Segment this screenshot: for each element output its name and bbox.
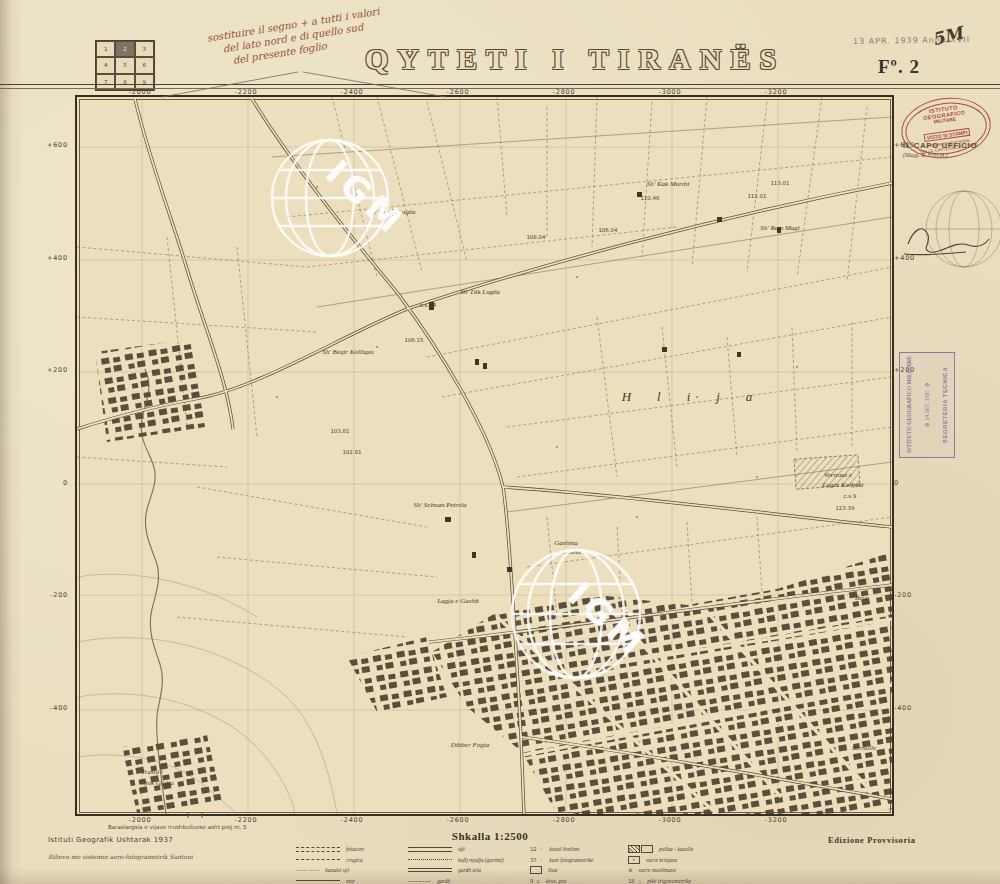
spot-height-label: 112.01 — [747, 193, 766, 199]
index-grid-cell: 1 — [96, 41, 115, 57]
legend-symbol-well: 9 ▫ — [530, 878, 540, 884]
spot-height-label: 108.04 — [526, 234, 545, 240]
legend-symbol-dsolid2 — [408, 868, 452, 872]
legend-symbol-rect: ·· — [530, 866, 542, 874]
legend-row: 12 ·kuotë livelimi — [530, 845, 594, 853]
legend-label: kuot fotogrametrike — [549, 857, 593, 863]
legend-label: varre muslimane — [639, 867, 677, 873]
legend-symbol-ddash — [296, 847, 340, 852]
index-grid-cell: 4 — [96, 57, 115, 73]
capo-ufficio-title: IL CAPO UFFICIO — [903, 141, 977, 150]
place-name-label: Lugës Kolljakt — [822, 481, 863, 489]
legend-row: ··lisat — [530, 866, 594, 874]
grid-coordinate-label: -3200 — [765, 816, 788, 824]
index-grid-cell: 3 — [135, 41, 154, 57]
legend-symbol-roof — [628, 845, 653, 853]
place-name-label: Dibber Fogia — [451, 741, 489, 749]
grid-coordinate-label: -2200 — [235, 816, 258, 824]
legend-label: krue, pus — [546, 878, 567, 884]
legend-column: fshatorerrugica—·—·—·—kanalet ujimur — [296, 845, 364, 884]
place-name-label: Trashi i — [141, 768, 163, 776]
handwritten-note: sostituire il segno + a tutti i valori d… — [206, 5, 384, 71]
farm-buildings — [392, 192, 781, 572]
legend-row: gardh tela — [408, 866, 504, 874]
legend-symbol-t37: 37 · — [530, 857, 543, 863]
legend-label: kuotë livelimi — [549, 846, 579, 852]
sheet-number: Fº. 2 — [878, 56, 920, 78]
legend-label: gardh — [437, 878, 450, 884]
grid-coordinate-label: 0 — [894, 479, 899, 487]
place-name-label: Bernolle — [852, 744, 876, 752]
spot-height-label: 103.81 — [330, 428, 349, 434]
legend-row: ujë — [408, 845, 504, 853]
grid-coordinate-label: -2800 — [553, 816, 576, 824]
legend-label: kufij mjafja (gurimi) — [458, 857, 504, 863]
legend-row: 9 ▫krue, pus — [530, 877, 594, 884]
place-name-label: Sh' Selman Petrela — [414, 501, 467, 509]
place-name-label: Beuc — [855, 594, 869, 602]
grid-coordinate-label: -2000 — [129, 816, 152, 824]
legend-label: kanalet uji — [325, 867, 349, 873]
legend-symbol-dots — [408, 859, 452, 860]
legend-row: —·—·—·—kanalet uji — [296, 866, 364, 874]
legend-row: kufij mjafja (gurimi) — [408, 856, 504, 864]
legend-symbol-t12: 12 · — [530, 846, 543, 852]
legend-label: pullaz - kasolle — [659, 846, 693, 852]
survey-method-note: Rilievu me sistemin aero-fotogrametrik S… — [48, 853, 193, 860]
legend-column: pullaz - kasolle✕varre krisjane⋔varre mu… — [628, 845, 693, 884]
purple-stamp-text: SEGRETERIA TECNICA — [942, 367, 948, 443]
place-name-label: Sh' Beqir Kolliqus — [322, 348, 373, 356]
legend-row: ✕varre krisjane — [628, 856, 693, 864]
legend-column: ujëkufij mjafja (gurimi)gardh tela∼∼∼∼∼∼… — [408, 845, 504, 884]
index-grid-cell: 2 — [115, 41, 134, 57]
edition-label: Edizione Provvisoria — [828, 835, 916, 845]
boundary-lines — [272, 117, 892, 512]
index-grid-cell: 5 — [115, 57, 134, 73]
legend-row: pullaz - kasolle — [628, 845, 693, 853]
spot-height-label: c.s.14 — [420, 302, 436, 308]
capo-ufficio-stamp: IL CAPO UFFICIO (Magg. R. FISCH.) — [903, 141, 977, 158]
legend-symbol-wavy: ∼∼∼∼∼∼∼ — [408, 878, 431, 884]
place-name-label: Lagja e Gashit — [437, 597, 479, 605]
grid-coordinate-label: +400 — [894, 254, 915, 262]
legend-label: ujë — [458, 846, 465, 852]
agency-imprint: Istituti Geografik Ushtarak 1937 — [48, 836, 173, 844]
legend-row: rrugica — [296, 856, 364, 864]
faint-globe-stamp — [920, 185, 1000, 275]
grid-coordinate-label: -200 — [894, 591, 912, 599]
grid-coordinate-label: +200 — [34, 366, 68, 374]
legend-symbol-solid — [296, 880, 340, 881]
legend-row: ⋔varre muslimane — [628, 866, 693, 874]
purple-stamp-date: ✠ 14 SET. 1937 ✠ — [924, 382, 930, 428]
legend-symbol-trig: 18 △ — [628, 878, 641, 884]
legend-label: mur — [346, 878, 355, 884]
handwritten-mark: 5M — [930, 23, 965, 50]
grid-coordinate-label: -2600 — [447, 816, 470, 824]
map-frame — [75, 95, 894, 816]
grid-coordinate-label: +600 — [34, 141, 68, 149]
legend-label: lisat — [548, 867, 558, 873]
legend-label: pikë trigonometrike — [647, 878, 691, 884]
contour-interval-note: Baraslargsia e vijave rrushbulluese asht… — [108, 824, 247, 830]
map-title: QYTETI I TIRANËS — [365, 42, 785, 76]
spot-height-label: 102.81 — [342, 449, 361, 455]
place-name-label: Sh' Ram Magi — [760, 224, 800, 232]
legend-row: fshatore — [296, 845, 364, 853]
grid-coordinate-label: -200 — [34, 591, 68, 599]
index-grid-cell: 6 — [135, 57, 154, 73]
spot-height-label: 123.39 — [835, 505, 854, 511]
legend-symbol-dsolid — [408, 847, 452, 852]
grid-coordinate-label: +400 — [34, 254, 68, 262]
grid-coordinate-label: -2400 — [341, 816, 364, 824]
signature — [900, 210, 995, 260]
grid-coordinate-label: -400 — [34, 704, 68, 712]
legend-symbol-dash — [296, 859, 340, 860]
place-name-label: Gjok Gjalia — [140, 779, 173, 787]
scale-label: Shkalla 1:2500 — [452, 830, 528, 842]
legend-label: gardh tela — [458, 867, 481, 873]
spot-height-label: 106.15 — [404, 337, 423, 343]
legend-symbol-gravex: ✕ — [628, 856, 640, 864]
spot-height-label: c.s.9 — [844, 493, 857, 499]
legend-row: mur — [296, 877, 364, 884]
purple-stamp-text: ISTITUTO GEOGRAFICO MILITARE — [906, 356, 912, 453]
legend-label: varre krisjane — [646, 857, 677, 863]
legend-symbol-dashdot: —·—·—·— — [296, 867, 319, 873]
place-name-label: Hlija — [622, 389, 779, 405]
legend-label: rrugica — [346, 857, 363, 863]
segreteria-tecnica-stamp: ISTITUTO GEOGRAFICO MILITARE ✠ 14 SET. 1… — [899, 352, 955, 458]
legend-symbol-gravem: ⋔ — [628, 867, 633, 873]
place-name-label: e Mashit — [557, 548, 581, 556]
place-name-label: Sh' Dik Lugëa — [460, 288, 500, 296]
map-drawing — [77, 97, 892, 814]
spot-height-label: 110.46 — [640, 195, 659, 201]
legend-row: 18 △pikë trigonometrike — [628, 877, 693, 884]
place-name-label: Sh' Saban Lugëa — [369, 208, 416, 216]
legend-row: ∼∼∼∼∼∼∼gardh — [408, 877, 504, 884]
legend-label: fshatore — [346, 846, 364, 852]
grid-coordinate-label: 0 — [34, 479, 68, 487]
grid-coordinate-label: -400 — [894, 704, 912, 712]
place-name-label: Gashina — [554, 539, 578, 547]
legend-row: 37 ·kuot fotogrametrike — [530, 856, 594, 864]
place-name-label: Sh' Kak Murthi — [647, 180, 690, 188]
spot-height-label: 113.01 — [770, 180, 789, 186]
place-name-label: Vorrezat e — [824, 471, 852, 479]
grid-coordinate-label: -3000 — [659, 816, 682, 824]
capo-ufficio-subtitle: (Magg. R. FISCH.) — [903, 152, 977, 158]
urban-blocks — [95, 339, 892, 814]
spot-height-label: 106.04 — [598, 227, 617, 233]
legend-column: 12 ·kuotë livelimi37 ·kuot fotogrametrik… — [530, 845, 594, 884]
map-sheet: sostituire il segno + a tutti i valori d… — [0, 0, 1000, 884]
